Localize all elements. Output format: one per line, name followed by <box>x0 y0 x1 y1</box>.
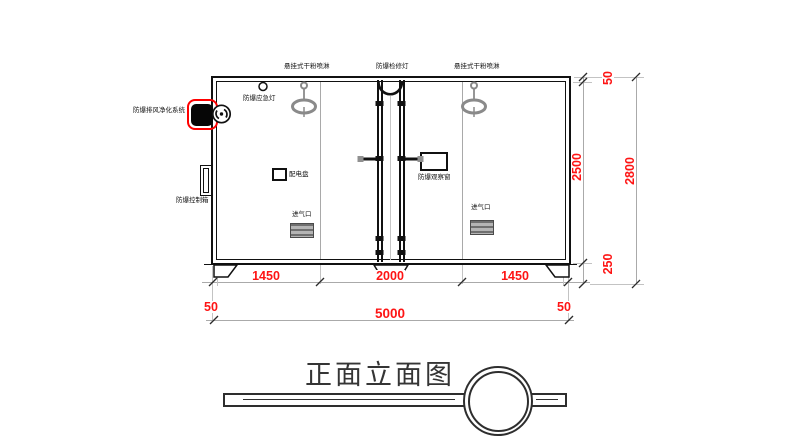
pipe-arch <box>379 82 403 94</box>
dim-right-top-50: 50 <box>602 70 614 86</box>
label-emergency-light: 防爆应急灯 <box>243 95 276 102</box>
dim-bottom-right-1450: 1450 <box>500 270 530 282</box>
label-air-inlet-left: 进气口 <box>292 211 312 218</box>
label-sprinkler-right: 悬挂式干粉喷淋 <box>454 63 500 70</box>
emergency-light-symbol <box>259 83 267 91</box>
drawing-title: 正面立面图 <box>305 353 455 392</box>
dim-bottom-total-5000: 5000 <box>374 308 406 320</box>
dim-right-250: 250 <box>602 253 614 276</box>
sprinkler-left-symbol <box>293 83 316 118</box>
dimension-ticks <box>209 73 640 324</box>
label-distribution-panel: 配电盘 <box>289 171 309 178</box>
label-sprinkler-left: 悬挂式干粉喷淋 <box>284 63 330 70</box>
dim-right-2500: 2500 <box>571 152 583 182</box>
fan-symbol <box>213 105 230 122</box>
label-observation-window: 防爆观察窗 <box>418 174 451 181</box>
dim-right-total-2800: 2800 <box>624 156 636 186</box>
dim-bottom-left-1450: 1450 <box>251 270 281 282</box>
dim-bottom-mid-2000: 2000 <box>375 270 405 282</box>
label-exhaust-purification: 防爆排风净化系统 <box>133 107 185 114</box>
front-elevation-drawing: 悬挂式干粉喷淋 防爆检修灯 悬挂式干粉喷淋 防爆应急灯 防爆排风净化系统 防爆控… <box>0 0 800 445</box>
label-air-inlet-right: 进气口 <box>471 204 491 211</box>
dim-bottom-margin-right-50: 50 <box>556 301 572 313</box>
pipe-fittings <box>363 101 418 255</box>
label-control-box: 防爆控制箱 <box>176 197 209 204</box>
label-inspection-light: 防爆检修灯 <box>376 63 409 70</box>
sprinkler-right-symbol <box>463 83 486 118</box>
dim-bottom-margin-left-50: 50 <box>203 301 219 313</box>
